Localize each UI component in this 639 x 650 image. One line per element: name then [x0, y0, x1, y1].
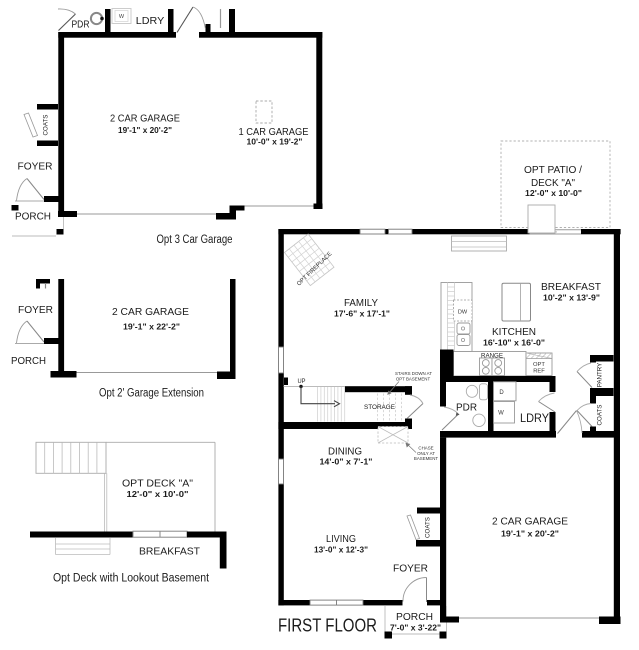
- svg-text:FOYER: FOYER: [18, 305, 53, 316]
- svg-text:W: W: [119, 14, 125, 20]
- svg-text:FOYER: FOYER: [18, 162, 53, 173]
- svg-text:10'-2" x 13'-9": 10'-2" x 13'-9": [543, 293, 600, 303]
- svg-text:STORAGE: STORAGE: [364, 404, 396, 411]
- svg-text:2 CAR GARAGE: 2 CAR GARAGE: [110, 113, 180, 125]
- svg-text:PDR: PDR: [72, 20, 90, 31]
- svg-text:COATS: COATS: [425, 517, 432, 538]
- svg-text:OPT: OPT: [533, 362, 545, 368]
- svg-text:COATS: COATS: [597, 405, 604, 426]
- svg-text:LDRY: LDRY: [136, 16, 165, 27]
- svg-text:BREAKFAST: BREAKFAST: [139, 547, 200, 558]
- svg-text:19'-1" x 22'-2": 19'-1" x 22'-2": [123, 322, 180, 332]
- svg-text:OPT PATIO /: OPT PATIO /: [524, 165, 582, 176]
- svg-text:PANTRY: PANTRY: [597, 363, 604, 388]
- svg-text:PDR: PDR: [456, 403, 477, 414]
- svg-text:D: D: [499, 390, 504, 396]
- svg-text:7'-0" x 3'-22": 7'-0" x 3'-22": [390, 623, 441, 633]
- svg-text:Opt 3 Car Garage: Opt 3 Car Garage: [157, 234, 233, 246]
- svg-text:LDRY: LDRY: [520, 413, 549, 425]
- svg-text:OPT DECK "A": OPT DECK "A": [122, 478, 193, 490]
- svg-text:FIRST FLOOR: FIRST FLOOR: [278, 615, 377, 636]
- svg-text:PORCH: PORCH: [15, 212, 51, 223]
- svg-text:KITCHEN: KITCHEN: [492, 326, 536, 338]
- svg-text:OPT BASEMENT: OPT BASEMENT: [396, 376, 431, 381]
- svg-text:ONLY AT: ONLY AT: [417, 451, 435, 456]
- svg-text:13'-0" x 12'-3": 13'-0" x 12'-3": [314, 545, 368, 555]
- svg-text:16'-10" x 16'-0": 16'-10" x 16'-0": [483, 338, 545, 348]
- svg-text:12'-0" x 10'-0": 12'-0" x 10'-0": [127, 489, 189, 499]
- svg-text:2 CAR GARAGE: 2 CAR GARAGE: [112, 306, 189, 318]
- svg-text:PORCH: PORCH: [396, 612, 433, 623]
- svg-text:10'-0" x 19'-2": 10'-0" x 19'-2": [247, 137, 303, 147]
- svg-text:2 CAR GARAGE: 2 CAR GARAGE: [492, 516, 568, 528]
- svg-text:COATS: COATS: [43, 115, 50, 136]
- svg-text:DW: DW: [458, 310, 468, 316]
- svg-text:Opt Deck with Lookout Basemen: Opt Deck with Lookout Basement: [53, 573, 210, 585]
- svg-text:19'-1" x 20'-2": 19'-1" x 20'-2": [118, 125, 172, 135]
- svg-text:BASEMENT: BASEMENT: [414, 456, 438, 461]
- svg-text:REF: REF: [533, 369, 545, 375]
- svg-text:17'-6" x 17'-1": 17'-6" x 17'-1": [334, 309, 390, 319]
- svg-text:LIVING: LIVING: [326, 533, 356, 545]
- svg-text:14'-0" x 7'-1": 14'-0" x 7'-1": [320, 457, 373, 467]
- svg-text:UP: UP: [298, 378, 306, 385]
- svg-text:PORCH: PORCH: [11, 356, 46, 367]
- svg-text:FAMILY: FAMILY: [344, 297, 378, 309]
- svg-text:19'-1" x 20'-2": 19'-1" x 20'-2": [501, 529, 559, 539]
- svg-text:DECK "A": DECK "A": [531, 178, 575, 189]
- svg-text:STAIRS DOWN AT: STAIRS DOWN AT: [395, 371, 432, 376]
- svg-text:CHASE: CHASE: [418, 446, 433, 451]
- svg-text:FOYER: FOYER: [393, 564, 428, 575]
- svg-text:Opt 2' Garage Extension: Opt 2' Garage Extension: [99, 388, 204, 400]
- svg-text:BREAKFAST: BREAKFAST: [541, 281, 602, 293]
- svg-text:W: W: [498, 411, 504, 417]
- svg-text:12'-0" x 10'-0": 12'-0" x 10'-0": [525, 189, 582, 198]
